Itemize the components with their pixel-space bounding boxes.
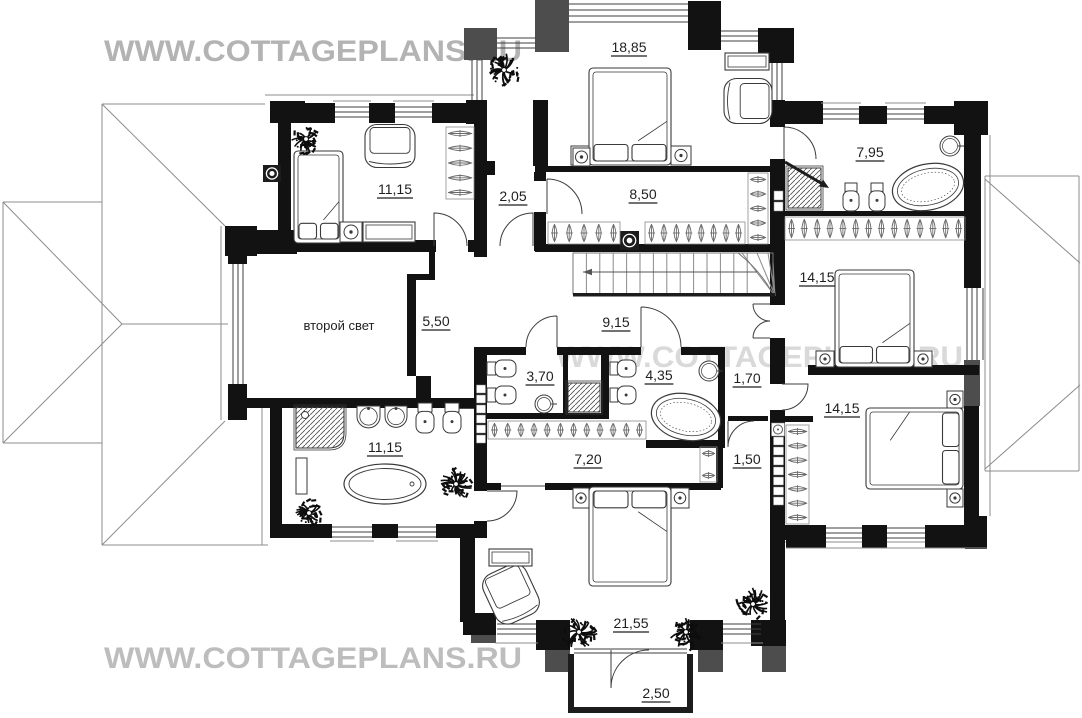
svg-text:11,15: 11,15 [378,181,412,197]
svg-text:2,50: 2,50 [642,685,669,701]
svg-text:1,70: 1,70 [733,370,760,386]
svg-text:11,15: 11,15 [368,439,402,455]
svg-text:18,85: 18,85 [611,39,646,55]
svg-text:WWW.COTTAGEPLANS.RU: WWW.COTTAGEPLANS.RU [104,35,522,68]
svg-text:7,20: 7,20 [574,451,601,467]
svg-text:7,95: 7,95 [856,144,883,160]
svg-text:2,05: 2,05 [499,188,526,204]
svg-text:9,15: 9,15 [602,314,629,330]
svg-text:8,50: 8,50 [629,186,656,202]
svg-text:14,15: 14,15 [824,400,859,416]
svg-text:4,35: 4,35 [645,367,672,383]
svg-text:3,70: 3,70 [526,368,553,384]
svg-text:второй свет: второй свет [303,318,374,333]
svg-text:14,15: 14,15 [799,269,834,285]
svg-text:1,50: 1,50 [733,451,760,467]
svg-text:WWW.COTTAGEPLANS.RU: WWW.COTTAGEPLANS.RU [104,642,522,675]
svg-text:21,55: 21,55 [613,615,648,631]
svg-text:5,50: 5,50 [422,313,449,329]
